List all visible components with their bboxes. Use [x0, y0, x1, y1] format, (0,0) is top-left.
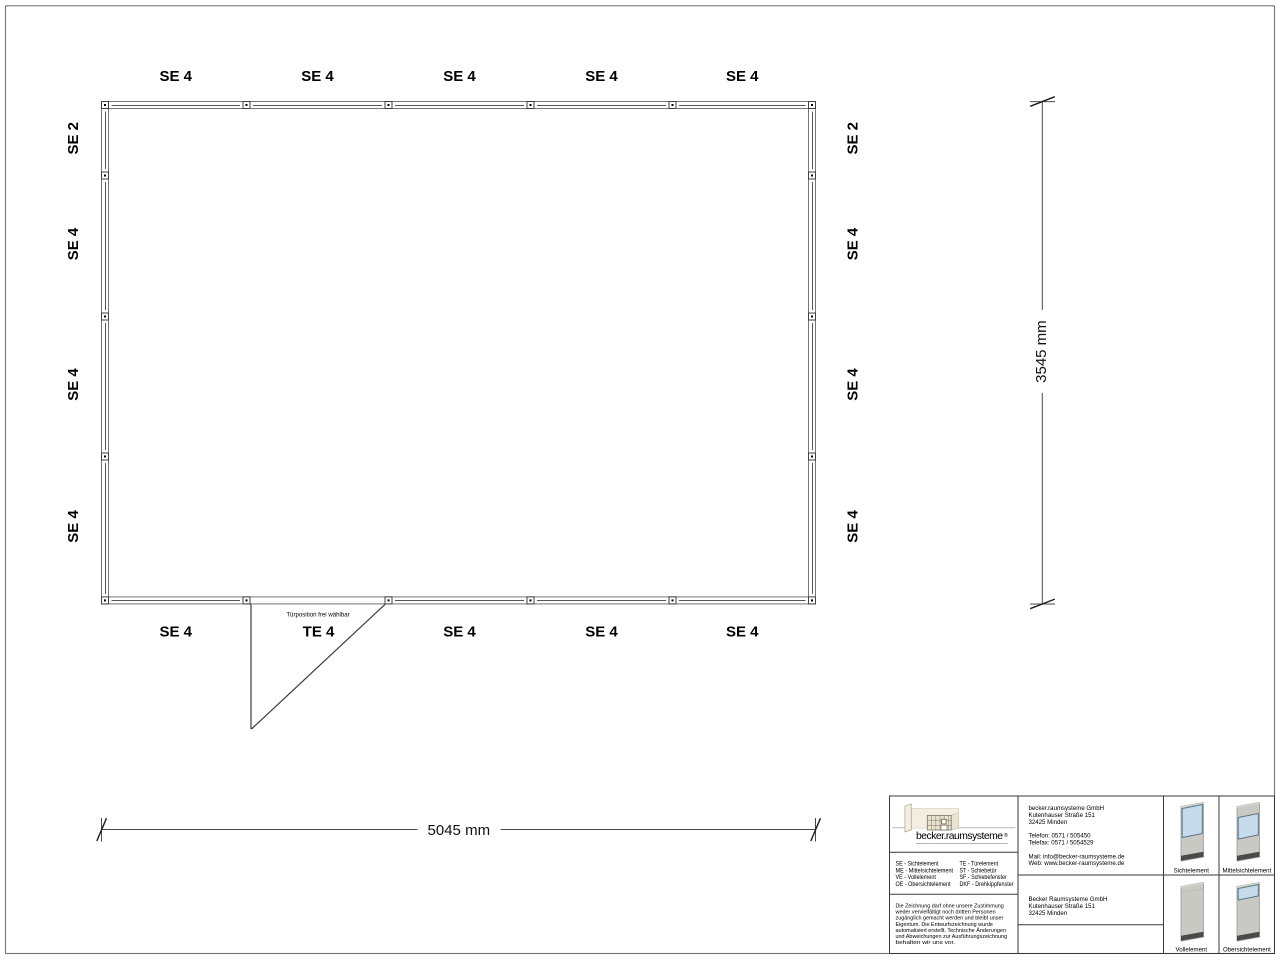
svg-text:SE 4: SE 4 — [443, 624, 476, 641]
svg-text:OE - Obersichtelement: OE - Obersichtelement — [896, 881, 951, 888]
svg-text:becker.raumsysteme: becker.raumsysteme — [916, 831, 1003, 842]
svg-text:Sichtelement: Sichtelement — [1174, 867, 1210, 874]
svg-text:Türposition frei wählbar: Türposition frei wählbar — [286, 612, 349, 619]
svg-text:SE 4: SE 4 — [65, 227, 82, 260]
svg-text:3545 mm: 3545 mm — [1033, 320, 1050, 383]
svg-text:SE 4: SE 4 — [159, 624, 192, 641]
svg-text:Telefax: 0571 / 5054529: Telefax: 0571 / 5054529 — [1029, 840, 1095, 847]
svg-text:SE 4: SE 4 — [585, 68, 618, 85]
svg-text:TE 4: TE 4 — [303, 624, 335, 641]
svg-text:SE 4: SE 4 — [845, 227, 862, 260]
svg-text:5045 mm: 5045 mm — [428, 822, 491, 839]
svg-text:SE 4: SE 4 — [301, 68, 334, 85]
svg-text:SE 4: SE 4 — [443, 68, 476, 85]
svg-text:SE 4: SE 4 — [65, 368, 82, 401]
svg-text:automatisiert erstellt. Techni: automatisiert erstellt. Technische Änder… — [896, 927, 1007, 934]
svg-text:SE 4: SE 4 — [159, 68, 192, 85]
svg-text:SE 2: SE 2 — [845, 122, 862, 155]
svg-text:32425 Minden: 32425 Minden — [1029, 910, 1068, 917]
svg-text:SE 4: SE 4 — [726, 68, 759, 85]
svg-text:SE 4: SE 4 — [845, 368, 862, 401]
svg-text:DKF - Drehkippfenster: DKF - Drehkippfenster — [960, 881, 1014, 888]
svg-text:SE 4: SE 4 — [726, 624, 759, 641]
svg-text:SE 4: SE 4 — [845, 510, 862, 543]
svg-text:SE 2: SE 2 — [65, 122, 82, 155]
svg-text:Obersichtelement: Obersichtelement — [1223, 946, 1271, 953]
svg-text:SE 4: SE 4 — [65, 510, 82, 543]
svg-text:32425 Minden: 32425 Minden — [1029, 819, 1068, 826]
svg-text:Web: www.becker-raumsysteme.de: Web: www.becker-raumsysteme.de — [1029, 860, 1125, 867]
svg-text:SE 4: SE 4 — [585, 624, 618, 641]
svg-text:®: ® — [1004, 832, 1008, 839]
svg-text:Mittelsichtelement: Mittelsichtelement — [1223, 867, 1272, 874]
svg-text:Vollelement: Vollelement — [1176, 946, 1208, 953]
svg-text:behalten wir uns vor.: behalten wir uns vor. — [896, 940, 956, 946]
